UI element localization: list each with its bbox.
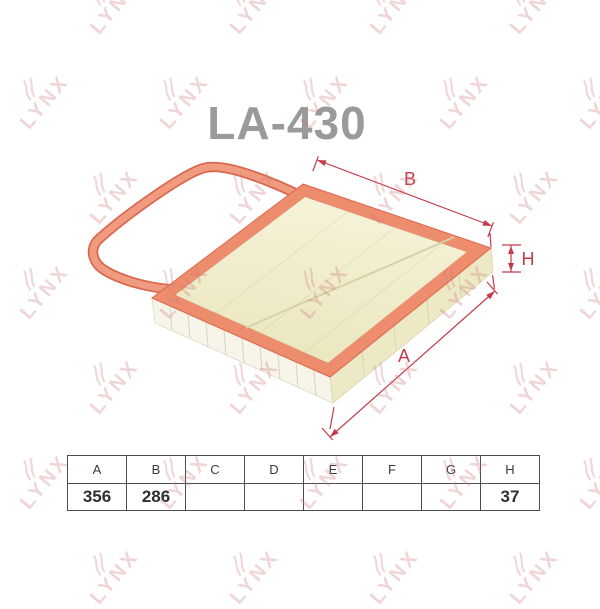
dim-value-cell <box>304 484 363 511</box>
dim-value-cell: 37 <box>481 484 540 511</box>
dimension-h: H <box>502 245 535 272</box>
dim-header-cell: G <box>422 456 481 484</box>
page: { "title": "LA-430", "watermark": { "tex… <box>0 0 600 600</box>
dim-header-cell: A <box>68 456 127 484</box>
dim-header-cell: E <box>304 456 363 484</box>
dim-header-cell: F <box>363 456 422 484</box>
dim-value-cell <box>422 484 481 511</box>
dim-value-cell: 356 <box>68 484 127 511</box>
dimension-label-b: B <box>404 169 416 189</box>
dim-header-cell: C <box>186 456 245 484</box>
dim-value-cell <box>363 484 422 511</box>
dimension-table: A B C D E F G H 356 286 37 <box>67 455 540 511</box>
dimension-table-value-row: 356 286 37 <box>68 484 540 511</box>
dimension-label-a: A <box>398 346 410 366</box>
dimension-table-header-row: A B C D E F G H <box>68 456 540 484</box>
dim-header-cell: H <box>481 456 540 484</box>
dimension-label-h: H <box>522 249 535 269</box>
dim-header-cell: B <box>127 456 186 484</box>
dim-value-cell: 286 <box>127 484 186 511</box>
dim-header-cell: D <box>245 456 304 484</box>
dim-value-cell <box>245 484 304 511</box>
dim-value-cell <box>186 484 245 511</box>
